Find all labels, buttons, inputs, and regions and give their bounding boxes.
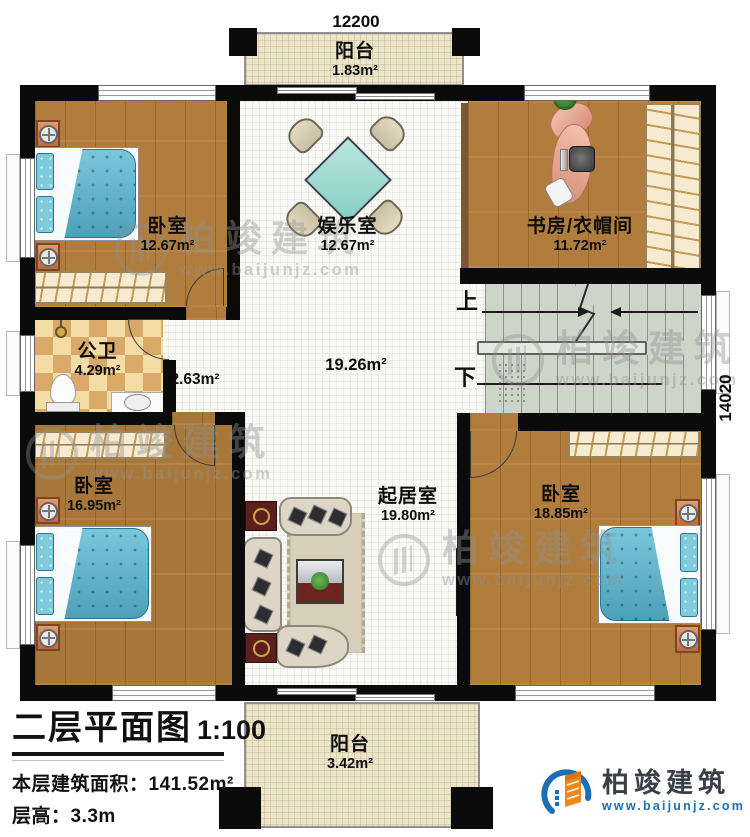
company-logo-text: 柏竣建筑 www.baijunjz.com xyxy=(602,769,745,813)
sofa-cushion xyxy=(252,577,272,597)
window-sill xyxy=(6,154,20,262)
dimension-right: 14020 xyxy=(716,358,736,438)
nightstand xyxy=(36,120,60,148)
watermark: 柏竣建筑 www.baijunjz.com xyxy=(26,424,274,484)
window-sill xyxy=(716,474,730,634)
sofa-cushion xyxy=(288,507,308,527)
dimension-top: 12200 xyxy=(306,12,406,32)
floor-area-line: 本层建筑面积：141.52m² xyxy=(12,769,266,796)
title-underline-thin xyxy=(12,760,224,761)
room-name: 卧室 xyxy=(505,484,617,506)
watermark-text: 柏竣建筑 www.baijunjz.com xyxy=(90,424,274,484)
hall-area-label: 19.26m² xyxy=(306,356,406,375)
sofa-cushion xyxy=(308,635,328,655)
window xyxy=(20,545,35,645)
window xyxy=(98,85,216,101)
bedroom-bottom-right-label: 卧室 18.85m² xyxy=(505,484,617,522)
stairs-up-label: 上 xyxy=(456,291,478,313)
floor-plan: 上 下 柏竣建筑 www.baijunjz.com xyxy=(0,0,750,837)
balcony-top-label: 阳台 1.83m² xyxy=(300,41,410,79)
sliding-door-panel xyxy=(277,87,357,94)
room-area: 11.72m² xyxy=(495,238,665,254)
monitor-stand xyxy=(560,149,568,171)
company-logo: 柏竣建筑 www.baijunjz.com xyxy=(540,764,745,818)
room-area: 2.63m² xyxy=(155,371,235,389)
room-name: 起居室 xyxy=(352,486,464,508)
wall xyxy=(518,413,716,431)
bathroom-label: 公卫 4.29m² xyxy=(55,341,140,379)
room-name: 卧室 xyxy=(110,216,225,238)
sliding-door-panel xyxy=(355,694,435,701)
entertainment-room-label: 娱乐室 12.67m² xyxy=(290,216,405,254)
room-area: 16.95m² xyxy=(38,498,150,514)
bedroom-bottom-left-label: 卧室 16.95m² xyxy=(38,476,150,514)
room-area: 12.67m² xyxy=(110,238,225,254)
sofa-cushion xyxy=(254,605,274,625)
study-threshold xyxy=(461,103,468,268)
sofa-cushion xyxy=(308,505,328,525)
sofa xyxy=(279,497,352,536)
watermark-logo-icon xyxy=(26,428,78,480)
nightstand xyxy=(675,625,700,653)
pillow xyxy=(680,578,698,617)
sliding-door-panel xyxy=(277,688,357,695)
watermark-url: www.baijunjz.com xyxy=(556,371,740,390)
coffee-table xyxy=(296,559,344,604)
watermark: 柏竣建筑 www.baijunjz.com xyxy=(492,330,740,390)
room-area: 1.83m² xyxy=(300,63,410,79)
company-name: 柏竣建筑 xyxy=(602,769,745,797)
room-area: 18.85m² xyxy=(505,506,617,522)
window xyxy=(515,685,655,701)
side-table xyxy=(245,633,277,663)
living-room-label: 起居室 19.80m² xyxy=(352,486,464,524)
watermark-url: www.baijunjz.com xyxy=(442,571,626,590)
column xyxy=(451,787,493,829)
watermark-company: 柏竣建筑 xyxy=(90,424,274,461)
room-area: 4.29m² xyxy=(55,363,140,379)
corridor-area-label: 2.63m² xyxy=(155,371,235,389)
bedroom-top-left-label: 卧室 12.67m² xyxy=(110,216,225,254)
wall xyxy=(460,268,716,284)
room-name: 书房/衣帽间 xyxy=(495,216,665,238)
computer-monitor xyxy=(569,146,595,172)
stairs-down-label: 下 xyxy=(454,367,476,389)
watermark-logo-icon xyxy=(492,334,544,386)
nightstand xyxy=(675,499,700,527)
chaise-sofa xyxy=(276,625,349,668)
pillow xyxy=(36,196,54,233)
nightstand xyxy=(36,243,60,271)
pillow xyxy=(680,533,698,572)
window xyxy=(20,158,35,258)
balcony-bottom-label: 阳台 3.42m² xyxy=(295,734,405,772)
window xyxy=(524,85,650,101)
double-bed xyxy=(33,526,152,622)
arrow-left-icon xyxy=(610,307,621,317)
room-area: 3.42m² xyxy=(295,756,405,772)
nightstand xyxy=(36,624,60,651)
watermark-company: 柏竣建筑 xyxy=(442,530,626,567)
window xyxy=(112,685,216,701)
floor-area-label: 本层建筑面积： xyxy=(12,774,149,795)
floor-height-label: 层高： xyxy=(12,806,71,827)
door-gap-patch xyxy=(186,307,226,320)
title-underline xyxy=(12,752,224,756)
stair-direction-line xyxy=(621,311,698,313)
pillow xyxy=(36,153,54,190)
company-logo-icon xyxy=(540,764,594,818)
company-website: www.baijunjz.com xyxy=(602,799,745,813)
table-plant xyxy=(311,572,329,590)
sofa-cushion xyxy=(286,638,306,658)
floor-area-value: 141.52m² xyxy=(149,774,234,795)
room-name: 阳台 xyxy=(295,734,405,756)
wall xyxy=(227,85,240,320)
column xyxy=(452,28,480,56)
watermark-text: 柏竣建筑 www.baijunjz.com xyxy=(556,330,740,390)
pillow xyxy=(36,577,54,615)
toilet-tank xyxy=(46,402,80,412)
sofa xyxy=(243,537,282,632)
watermark: 柏竣建筑 www.baijunjz.com xyxy=(378,530,626,590)
room-name: 卧室 xyxy=(38,476,150,498)
window xyxy=(701,478,716,630)
floor-height-line: 层高：3.3m xyxy=(12,801,266,828)
sink-basin xyxy=(124,394,151,411)
window-sill xyxy=(6,331,20,396)
room-area: 19.26m² xyxy=(306,356,406,375)
wardrobe xyxy=(568,430,700,458)
arrow-right-icon xyxy=(578,307,589,317)
room-name: 公卫 xyxy=(55,341,140,363)
window xyxy=(20,335,35,392)
sliding-door-panel xyxy=(355,93,435,100)
window-sill xyxy=(6,541,20,649)
pillow xyxy=(36,533,54,571)
study-cloakroom-label: 书房/衣帽间 11.72m² xyxy=(495,216,665,254)
floor-height-value: 3.3m xyxy=(71,806,116,827)
plan-title: 二层平面图 xyxy=(12,700,192,749)
watermark-company: 柏竣建筑 xyxy=(556,330,740,367)
room-name: 娱乐室 xyxy=(290,216,405,238)
door-gap-patch xyxy=(470,413,518,431)
title-row: 二层平面图 1:100 xyxy=(12,700,266,749)
column xyxy=(229,28,257,56)
plan-scale: 1:100 xyxy=(197,715,266,746)
room-name: 阳台 xyxy=(300,41,410,63)
title-block: 二层平面图 1:100 本层建筑面积：141.52m² 层高：3.3m xyxy=(12,700,266,828)
sofa-cushion xyxy=(254,549,274,569)
sofa-cushion xyxy=(328,508,348,528)
room-area: 19.80m² xyxy=(352,508,464,524)
room-area: 12.67m² xyxy=(290,238,405,254)
watermark-url: www.baijunjz.com xyxy=(179,261,363,280)
wall xyxy=(226,307,240,320)
side-table xyxy=(245,501,277,531)
watermark-logo-icon xyxy=(378,534,430,586)
ceiling-light xyxy=(55,326,67,338)
watermark-text: 柏竣建筑 www.baijunjz.com xyxy=(442,530,626,590)
stair-direction-line xyxy=(482,311,578,313)
